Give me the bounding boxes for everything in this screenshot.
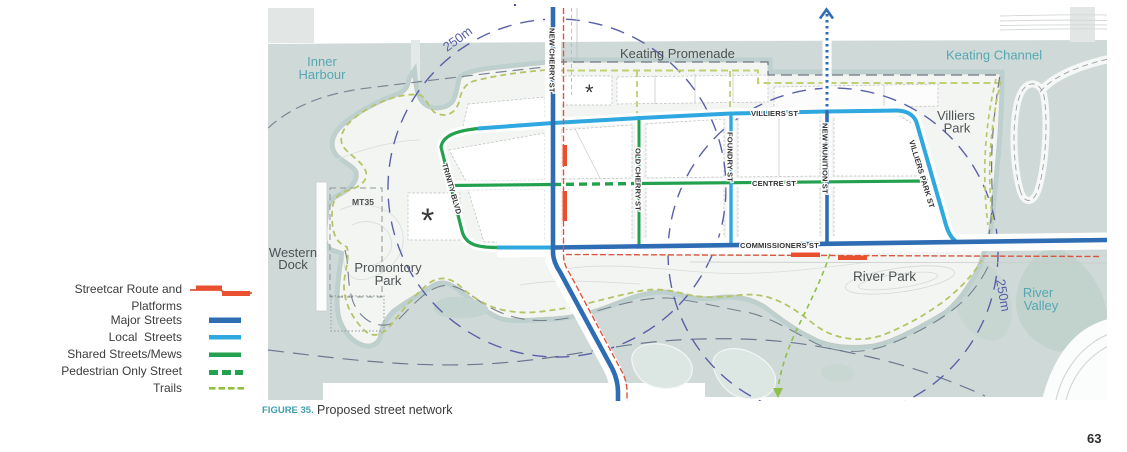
svg-text:Pedestrian Only Street: Pedestrian Only Street [61, 364, 182, 378]
svg-text:Park: Park [375, 273, 402, 288]
svg-text:Streetcar Route and: Streetcar Route and [75, 282, 182, 296]
svg-text:NEW CHERRY ST: NEW CHERRY ST [548, 28, 557, 93]
svg-text:Proposed street network: Proposed street network [317, 403, 453, 417]
svg-text:FOUNDRY ST: FOUNDRY ST [726, 132, 735, 182]
svg-text:COMMISSIONERS ST: COMMISSIONERS ST [740, 241, 819, 250]
svg-text:VILLIERS ST: VILLIERS ST [751, 109, 798, 118]
svg-text:Park: Park [944, 121, 971, 136]
svg-text:Keating Promenade: Keating Promenade [620, 46, 735, 61]
svg-text:FIGURE 35.: FIGURE 35. [262, 405, 314, 416]
svg-text:Trails: Trails [153, 381, 182, 395]
svg-text:Harbour: Harbour [299, 67, 347, 82]
svg-text:Major Streets: Major Streets [111, 313, 182, 327]
svg-text:River Park: River Park [853, 269, 916, 284]
svg-text:OLD CHERRY ST: OLD CHERRY ST [634, 148, 643, 211]
svg-text:MT35: MT35 [352, 197, 374, 207]
svg-text:Valley: Valley [1024, 298, 1059, 313]
svg-text:CENTRE ST: CENTRE ST [752, 179, 796, 188]
svg-text:*: * [421, 202, 434, 240]
svg-text:63: 63 [1087, 431, 1101, 446]
svg-text:Platforms: Platforms [131, 299, 182, 313]
svg-text:Shared Streets/Mews: Shared Streets/Mews [67, 347, 182, 361]
svg-text:Dock: Dock [278, 257, 308, 272]
svg-text:Local Streets: Local Streets [109, 330, 182, 344]
svg-text:Keating Channel: Keating Channel [946, 48, 1042, 63]
svg-text:NEW MUNITION ST: NEW MUNITION ST [821, 123, 830, 194]
svg-text:*: * [585, 80, 594, 105]
